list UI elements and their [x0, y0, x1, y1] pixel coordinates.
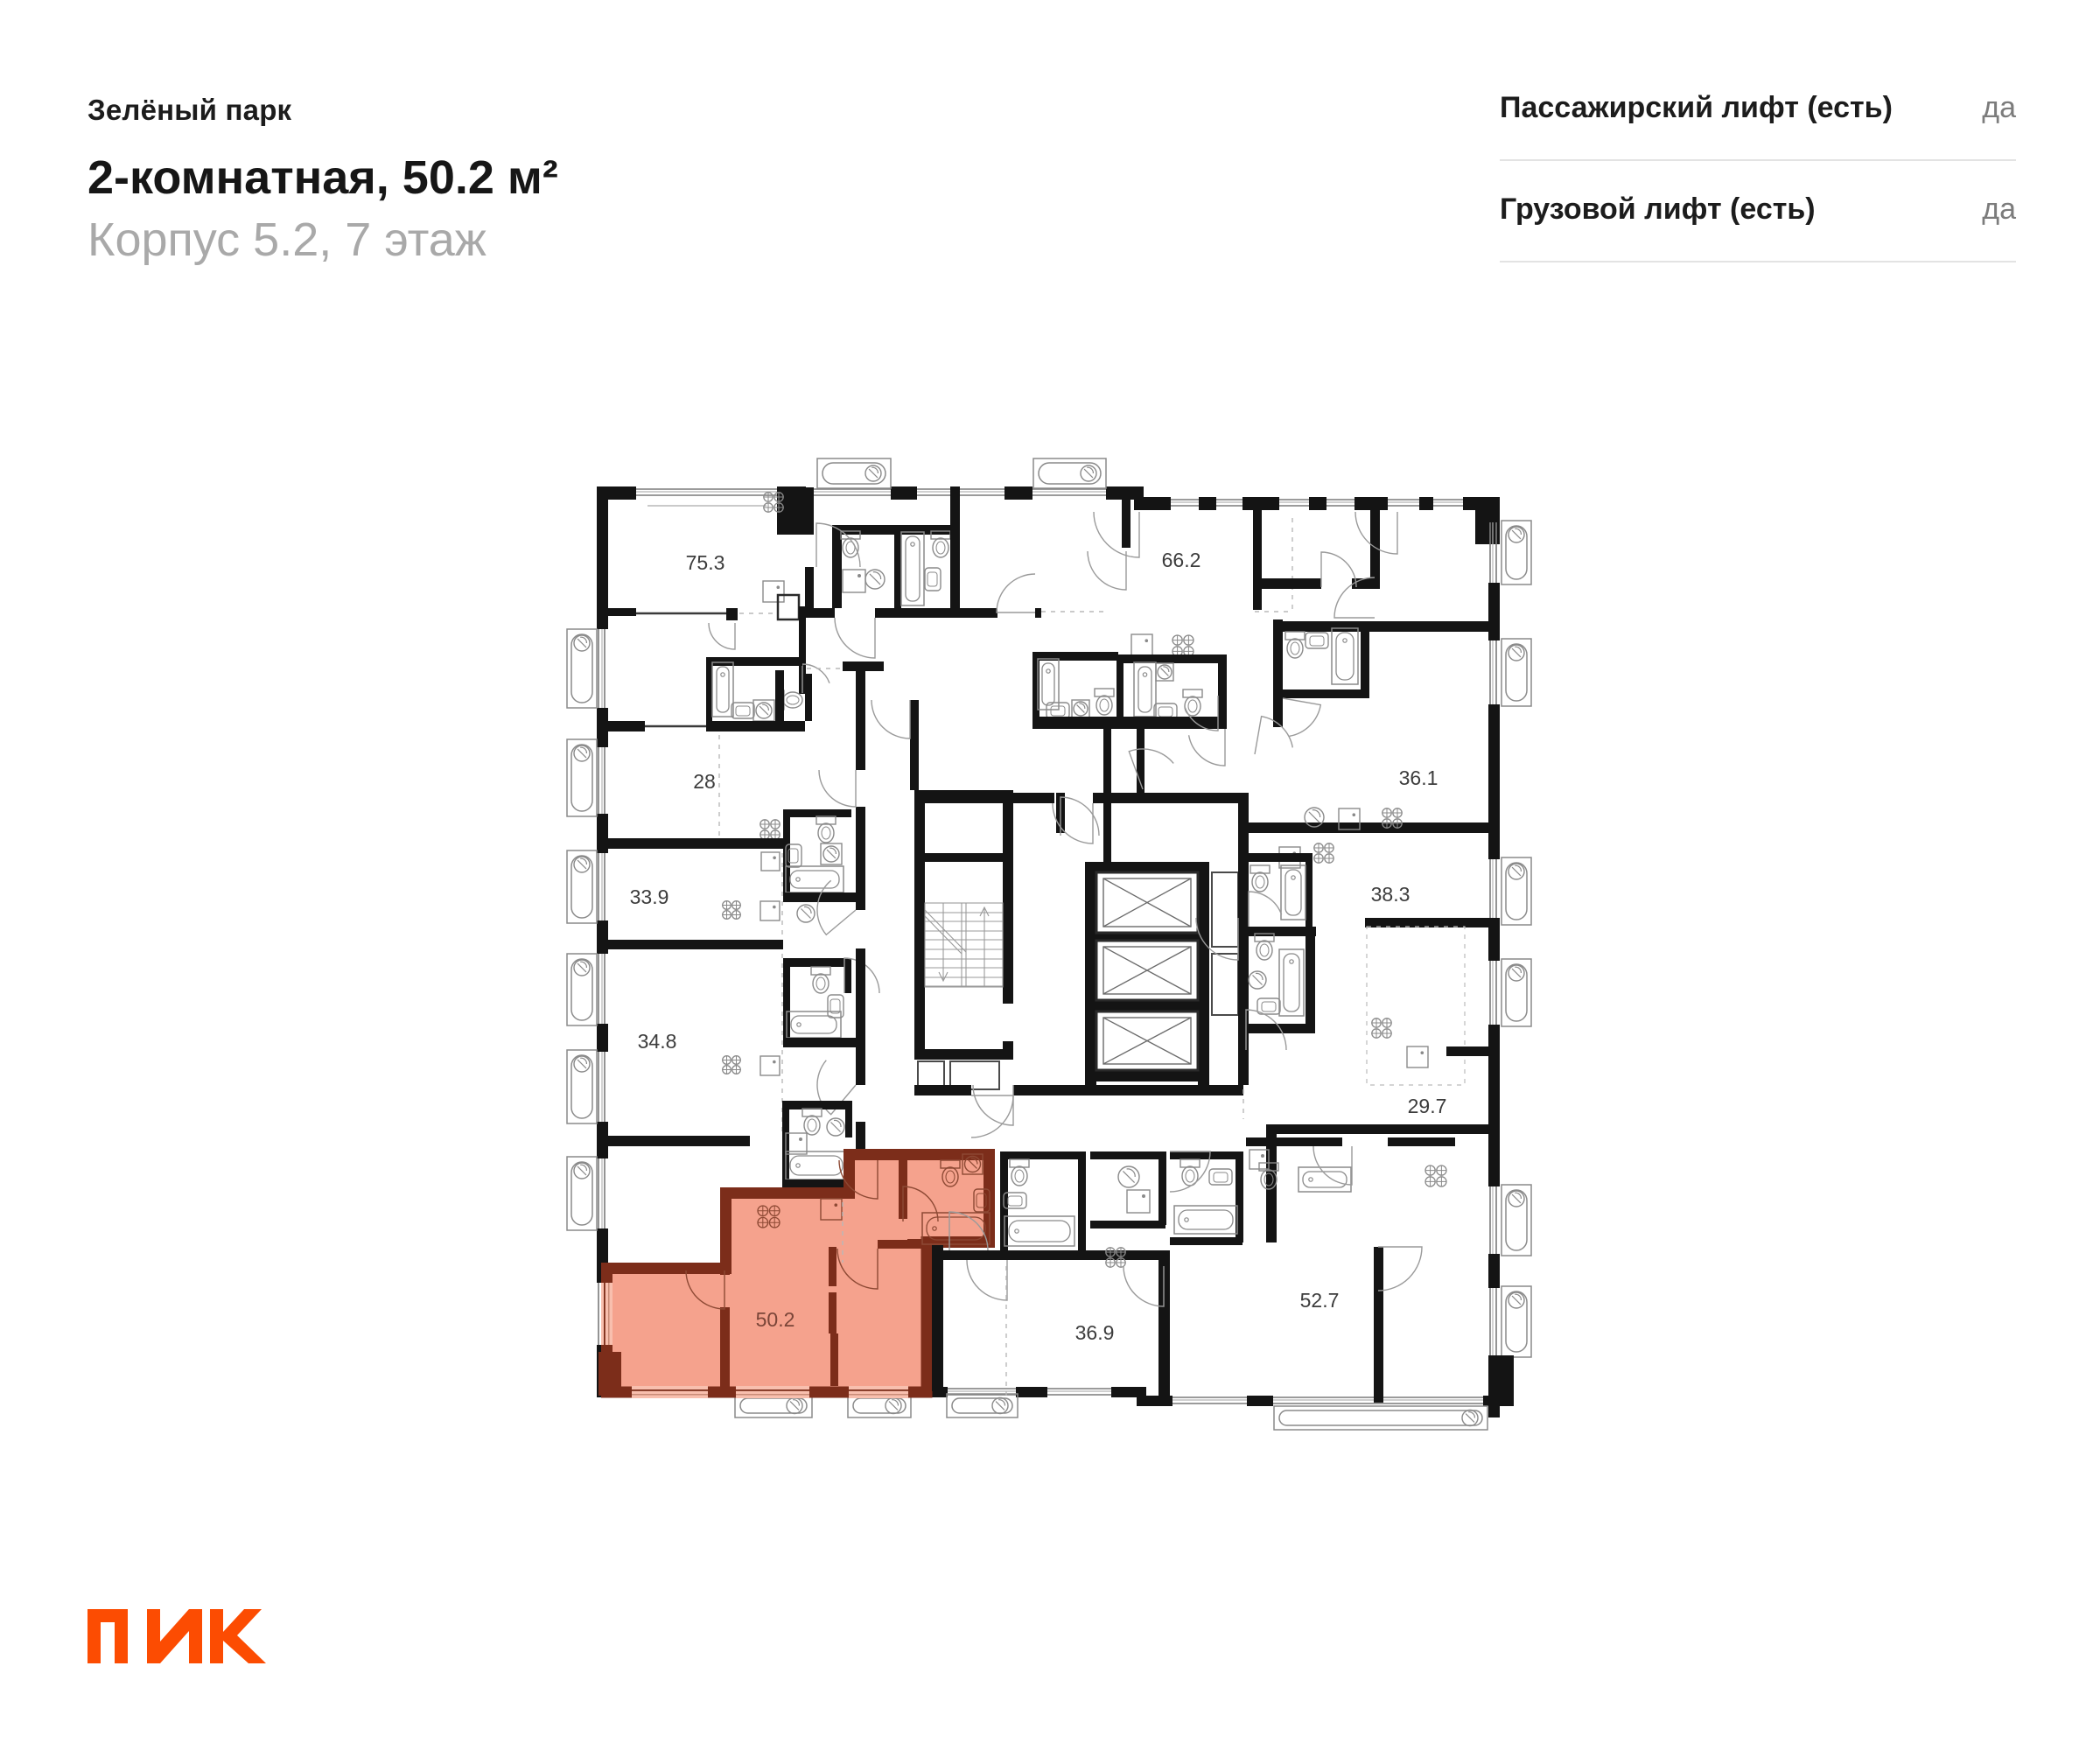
svg-text:28: 28	[693, 770, 716, 793]
svg-text:52.7: 52.7	[1300, 1289, 1340, 1312]
svg-text:36.9: 36.9	[1075, 1321, 1115, 1344]
svg-text:36.1: 36.1	[1399, 766, 1438, 789]
svg-text:75.3: 75.3	[686, 551, 725, 574]
svg-text:38.3: 38.3	[1371, 883, 1410, 906]
svg-text:33.9: 33.9	[630, 885, 669, 908]
svg-text:50.2: 50.2	[756, 1308, 795, 1331]
svg-text:34.8: 34.8	[638, 1030, 677, 1053]
svg-text:66.2: 66.2	[1162, 549, 1201, 571]
svg-text:29.7: 29.7	[1408, 1095, 1447, 1117]
